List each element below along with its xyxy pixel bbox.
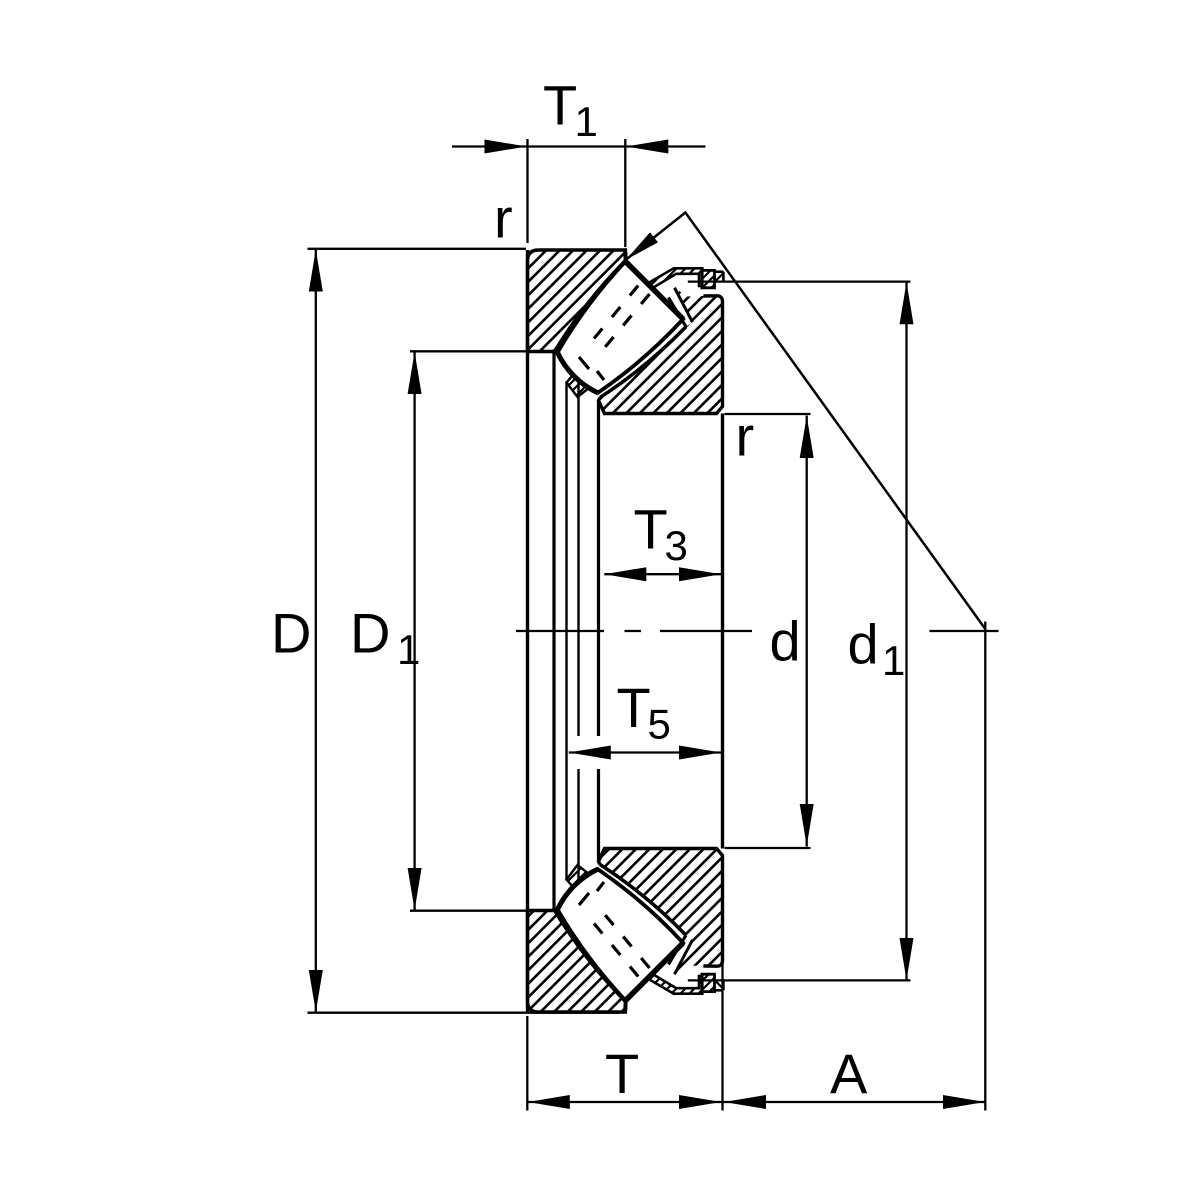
svg-text:d: d: [848, 613, 879, 676]
svg-text:T: T: [634, 498, 668, 561]
svg-text:r: r: [494, 187, 513, 250]
svg-text:T: T: [543, 74, 577, 137]
svg-text:D: D: [271, 602, 311, 665]
svg-text:D: D: [350, 602, 390, 665]
svg-text:d: d: [770, 610, 801, 673]
svg-text:A: A: [830, 1042, 868, 1105]
svg-text:T: T: [617, 676, 651, 739]
svg-text:r: r: [736, 405, 755, 468]
svg-text:1: 1: [882, 637, 905, 684]
svg-text:T: T: [605, 1042, 639, 1105]
svg-text:1: 1: [397, 626, 420, 673]
svg-text:5: 5: [648, 701, 671, 748]
svg-text:1: 1: [575, 98, 598, 145]
svg-text:3: 3: [665, 522, 688, 569]
